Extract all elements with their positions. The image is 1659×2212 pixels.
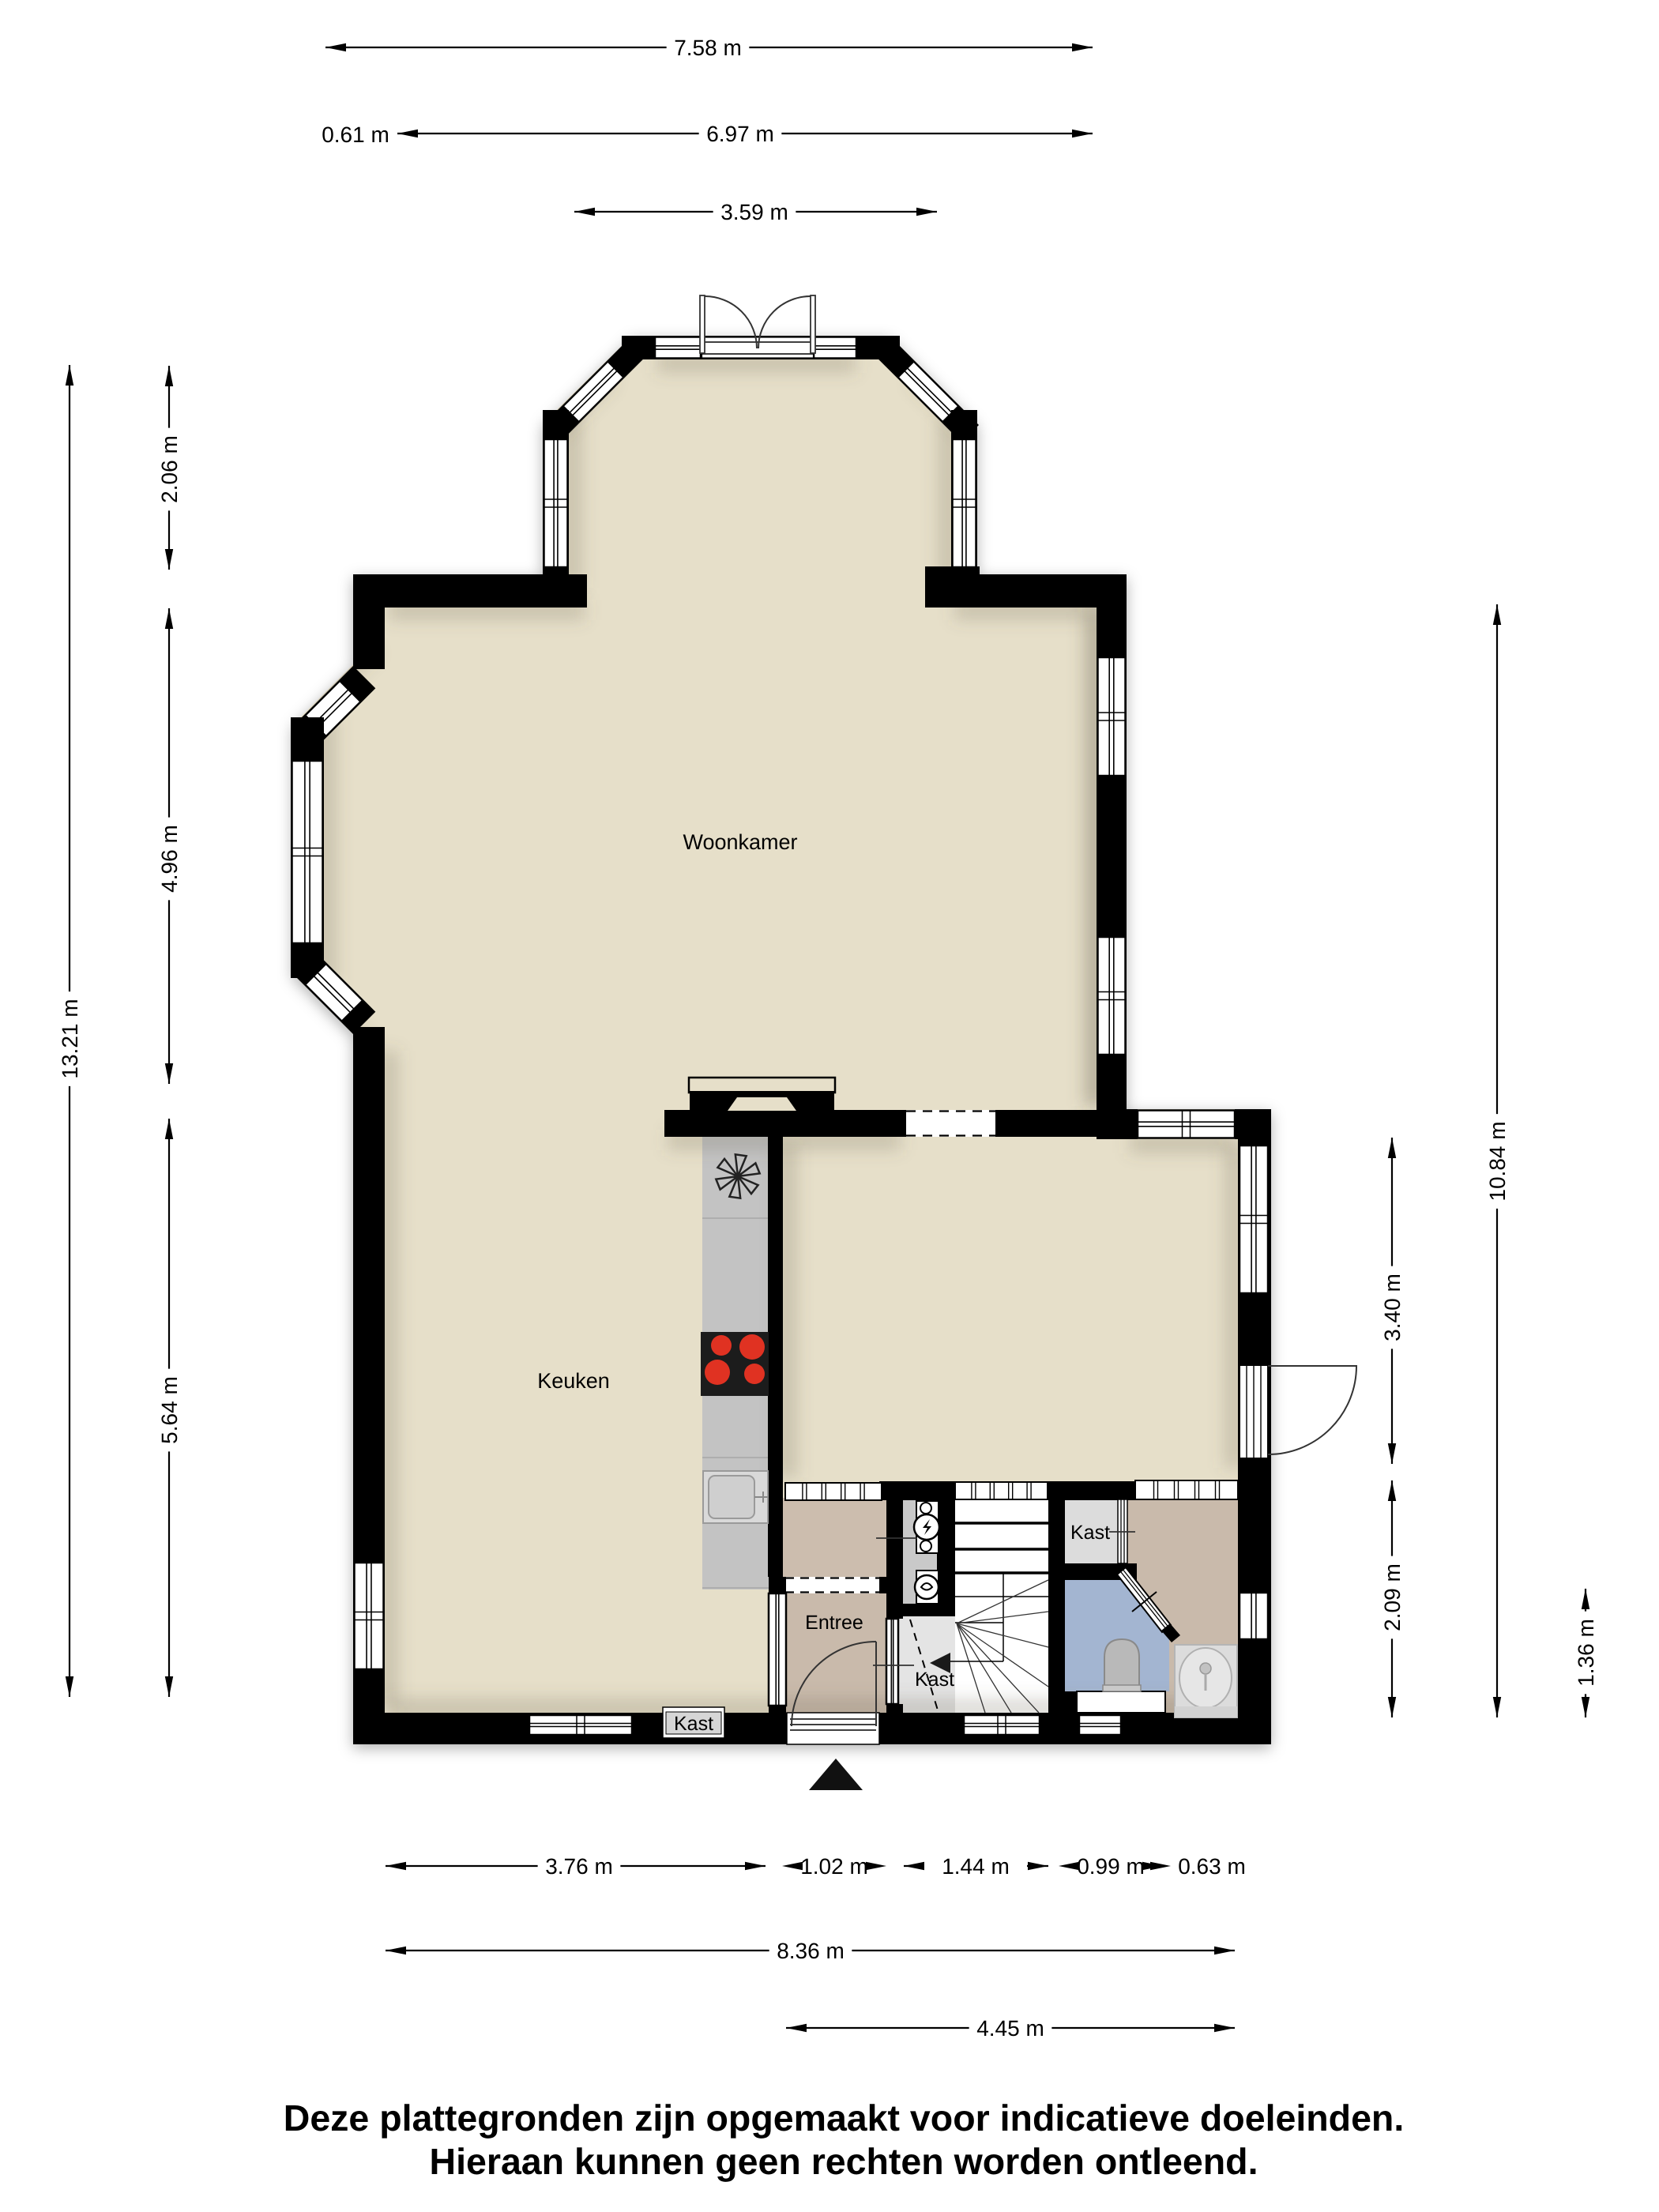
svg-text:4.45 m: 4.45 m: [976, 2016, 1044, 2041]
svg-text:Kast: Kast: [1070, 1522, 1110, 1544]
svg-text:2.09 m: 2.09 m: [1380, 1563, 1405, 1631]
svg-text:Kast: Kast: [674, 1713, 713, 1735]
svg-text:Deze plattegronden zijn opgema: Deze plattegronden zijn opgemaakt voor i…: [284, 2097, 1405, 2139]
svg-text:Entree: Entree: [805, 1612, 863, 1634]
svg-text:1.44 m: 1.44 m: [942, 1854, 1010, 1879]
svg-text:0.63 m: 0.63 m: [1178, 1854, 1246, 1879]
svg-text:5.64 m: 5.64 m: [157, 1376, 182, 1444]
svg-text:7.58 m: 7.58 m: [674, 36, 742, 60]
svg-text:Kast: Kast: [915, 1668, 954, 1691]
svg-text:1.36 m: 1.36 m: [1574, 1619, 1598, 1687]
svg-text:13.21 m: 13.21 m: [58, 999, 82, 1078]
svg-text:Woonkamer: Woonkamer: [683, 830, 797, 854]
svg-text:0.99 m: 0.99 m: [1077, 1854, 1145, 1879]
svg-text:3.40 m: 3.40 m: [1380, 1273, 1405, 1341]
svg-text:Hieraan kunnen geen rechten wo: Hieraan kunnen geen rechten worden ontle…: [429, 2141, 1258, 2182]
svg-text:3.59 m: 3.59 m: [720, 200, 788, 224]
svg-text:1.02 m: 1.02 m: [800, 1854, 868, 1879]
svg-text:10.84 m: 10.84 m: [1485, 1121, 1510, 1201]
svg-text:Keuken: Keuken: [537, 1369, 610, 1393]
svg-text:4.96 m: 4.96 m: [157, 825, 182, 893]
svg-text:8.36 m: 8.36 m: [777, 1939, 845, 1963]
svg-text:3.76 m: 3.76 m: [545, 1854, 613, 1879]
svg-text:0.61 m: 0.61 m: [322, 122, 389, 147]
svg-text:2.06 m: 2.06 m: [157, 435, 182, 503]
svg-text:6.97 m: 6.97 m: [706, 122, 774, 146]
